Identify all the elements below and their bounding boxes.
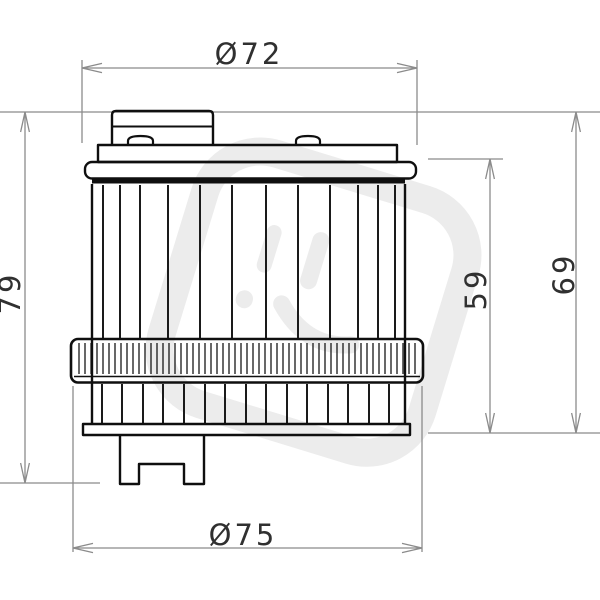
upper-body-ribs xyxy=(103,185,395,338)
body-shadow-band xyxy=(92,178,405,184)
technical-drawing-svg: Ø72 Ø75 79 59 69 xyxy=(0,0,600,600)
watermark-swoosh-icon xyxy=(275,304,357,350)
label-case-height: 69 xyxy=(547,253,581,296)
dimension-labels: Ø72 Ø75 79 59 69 xyxy=(0,37,581,552)
rivet-right xyxy=(296,136,320,145)
label-bottom-diameter: Ø75 xyxy=(209,518,278,552)
label-body-height: 59 xyxy=(459,268,493,311)
brand-watermark xyxy=(145,137,482,467)
drawing-canvas: Ø72 Ø75 79 59 69 xyxy=(0,0,600,600)
lower-body-ribs xyxy=(102,384,389,423)
grip-ring-knurling xyxy=(79,343,415,374)
rivet-left xyxy=(128,136,153,145)
label-overall-height: 79 xyxy=(0,272,27,315)
watermark-finger-right-icon xyxy=(309,241,321,281)
mounting-stub xyxy=(120,435,204,484)
watermark-frame xyxy=(145,137,482,467)
dimension-annotations xyxy=(0,60,600,553)
label-top-diameter: Ø72 xyxy=(215,37,284,71)
